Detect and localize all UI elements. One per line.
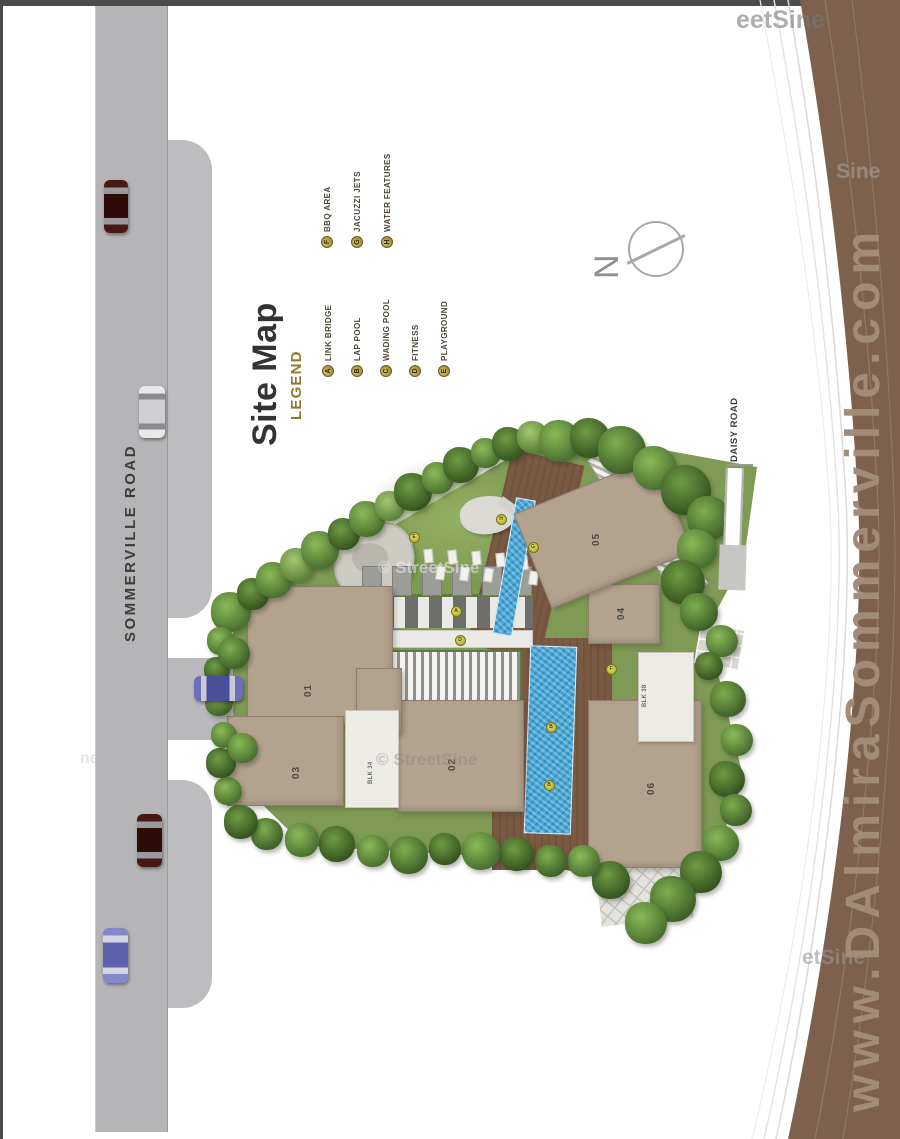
pergola-trellis xyxy=(374,650,522,722)
legend-label: LAP POOL xyxy=(353,317,362,361)
page-title: Site Map xyxy=(246,302,285,446)
daisy-road-surface xyxy=(718,545,747,591)
scan-border-left xyxy=(0,0,3,1139)
legend-marker-G: G xyxy=(351,236,363,248)
playground-equipment xyxy=(352,543,388,573)
site-map-page: SOMMERVILLE ROAD www.DAlmiraSommerville.… xyxy=(0,0,900,1139)
road-verge-upper xyxy=(168,140,212,618)
legend-item-H: HWATER FEATURES xyxy=(381,153,393,248)
legend-item-D: DFITNESS xyxy=(409,324,421,377)
paved-plaza xyxy=(593,831,693,926)
legend-marker-H: H xyxy=(381,236,393,248)
legend-label: WADING POOL xyxy=(382,299,391,361)
website-watermark: www.DAlmiraSommerville.com xyxy=(836,225,891,1112)
tree xyxy=(207,627,235,655)
tree xyxy=(251,818,283,850)
sommerville-road-label: SOMMERVILLE ROAD xyxy=(122,444,139,642)
legend-item-G: GJACUZZI JETS xyxy=(351,171,363,248)
legend-label: WATER FEATURES xyxy=(383,153,392,232)
tree xyxy=(206,748,236,778)
legend-item-A: ALINK BRIDGE xyxy=(322,305,334,377)
legend-label: FITNESS xyxy=(411,324,420,361)
legend-label: PLAYGROUND xyxy=(440,301,449,361)
daisy-road-label: DAISY ROAD xyxy=(729,398,740,462)
legend-item-E: EPLAYGROUND xyxy=(438,301,450,377)
legend-item-C: CWADING POOL xyxy=(380,299,392,377)
legend-label: BBQ AREA xyxy=(323,186,332,232)
tree xyxy=(214,777,242,805)
legend-marker-E: E xyxy=(438,365,450,377)
tree xyxy=(224,805,258,839)
legend-marker-A: A xyxy=(322,365,334,377)
legend-item-B: BLAP POOL xyxy=(351,317,363,377)
daisy-road-leader-line xyxy=(727,464,753,466)
compass-north-label: N xyxy=(588,254,627,279)
legend-marker-C: C xyxy=(380,365,392,377)
legend-item-F: FBBQ AREA xyxy=(321,186,333,248)
paved-path xyxy=(694,623,744,670)
legend-heading: LEGEND xyxy=(288,350,305,420)
legend-marker-D: D xyxy=(409,365,421,377)
lap-pool xyxy=(524,645,578,835)
legend-label: LINK BRIDGE xyxy=(324,305,333,361)
legend-marker-F: F xyxy=(321,236,333,248)
legend-marker-B: B xyxy=(351,365,363,377)
legend-label: JACUZZI JETS xyxy=(353,171,362,232)
road-verge-lower xyxy=(168,780,212,1008)
